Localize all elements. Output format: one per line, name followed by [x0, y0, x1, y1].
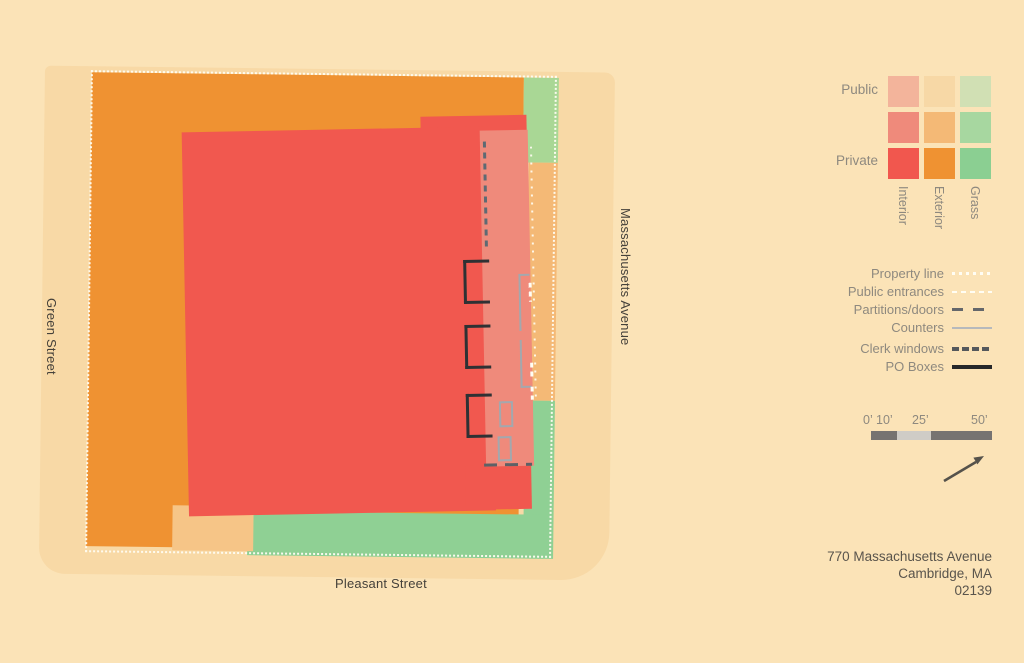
scale-bar-labels: 0’ 10’ 25’ 50’ — [856, 413, 996, 427]
po-boxes-2 — [464, 325, 491, 369]
legend-label: Clerk windows — [860, 341, 944, 356]
address-line-3: 02139 — [782, 582, 992, 599]
swatch-public-interior — [888, 76, 919, 107]
legend-item-counters: Counters — [804, 321, 992, 334]
swatch-private-grass — [960, 148, 991, 179]
scale-label-10: 10’ — [876, 413, 893, 427]
building-private-interior — [182, 126, 496, 516]
clerk-windows-swatch-icon — [952, 347, 992, 351]
line-legend: Property line Public entrances Partition… — [804, 267, 992, 378]
building-south-block — [465, 465, 532, 510]
address-block: 770 Massachusetts Avenue Cambridge, MA 0… — [782, 548, 992, 599]
swatch-public-exterior — [924, 76, 955, 107]
swatch-public-grass — [960, 76, 991, 107]
street-label-pleasant-street: Pleasant Street — [335, 576, 427, 591]
public-entrance-3 — [531, 387, 534, 400]
address-line-1: 770 Massachusetts Avenue — [782, 548, 992, 565]
legend-col-label-grass: Grass — [968, 186, 982, 219]
swatch-semi-interior — [888, 112, 919, 143]
legend-item-public-entrances: Public entrances — [804, 285, 992, 298]
scale-label-25: 25’ — [912, 413, 929, 427]
site-map — [30, 55, 630, 585]
legend-label: PO Boxes — [885, 359, 944, 374]
scale-segment-3 — [931, 431, 992, 440]
north-arrow-icon — [936, 450, 992, 491]
legend-col-label-exterior: Exterior — [932, 186, 946, 229]
po-boxes-swatch-icon — [952, 365, 992, 369]
property-line-swatch-icon — [952, 272, 992, 275]
legend-col-label-interior: Interior — [896, 186, 910, 225]
legend-color-matrix — [888, 76, 991, 179]
public-entrance-2 — [530, 363, 533, 380]
legend-label: Counters — [891, 320, 944, 335]
swatch-private-exterior — [924, 148, 955, 179]
lobby-fixture-2 — [498, 436, 512, 461]
scale-bar — [871, 431, 992, 440]
po-boxes-3 — [466, 393, 493, 437]
counters-swatch-icon — [952, 327, 992, 329]
legend-item-clerk-windows: Clerk windows — [804, 342, 992, 355]
legend-row-label-private: Private — [790, 153, 878, 168]
legend-row-label-public: Public — [790, 82, 878, 97]
legend-label: Public entrances — [848, 284, 944, 299]
scale-label-0: 0’ — [863, 413, 873, 427]
legend-item-po-boxes: PO Boxes — [804, 360, 992, 373]
partitions-doors-swatch-icon — [952, 308, 992, 311]
scale-segment-2 — [897, 431, 931, 440]
public-entrance-1 — [529, 283, 532, 302]
po-boxes-1 — [463, 260, 490, 304]
street-label-green-street: Green Street — [44, 298, 59, 375]
building-layer — [25, 50, 635, 591]
legend-label: Partitions/doors — [854, 302, 944, 317]
scale-label-50: 50’ — [971, 413, 988, 427]
street-label-massachusetts-avenue: Massachusetts Avenue — [618, 208, 633, 345]
legend-item-partitions-doors: Partitions/doors — [804, 303, 992, 316]
swatch-private-interior — [888, 148, 919, 179]
legend-item-property-line: Property line — [804, 267, 992, 280]
swatch-semi-grass — [960, 112, 991, 143]
address-line-2: Cambridge, MA — [782, 565, 992, 582]
public-entrances-swatch-icon — [952, 291, 992, 293]
swatch-semi-exterior — [924, 112, 955, 143]
poster-page: Green Street Massachusetts Avenue Pleasa… — [0, 0, 1024, 663]
legend-label: Property line — [871, 266, 944, 281]
scale-segment-1 — [871, 431, 897, 440]
lobby-fixture-1 — [499, 401, 513, 427]
